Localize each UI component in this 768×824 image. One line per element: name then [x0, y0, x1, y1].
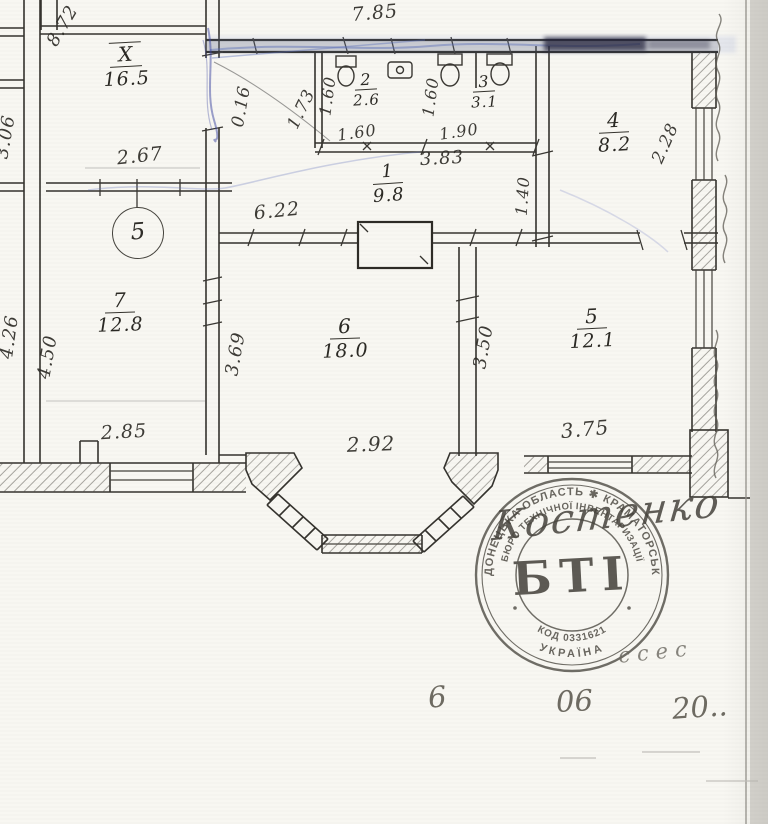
room-label-7: 7 12.8 — [83, 289, 157, 336]
room-number: 3 — [472, 73, 495, 92]
date-day: 6 — [427, 679, 448, 714]
room-label-5: 5 12.1 — [555, 304, 629, 353]
bay-side-window-left — [267, 494, 328, 550]
room-number: 6 — [329, 315, 361, 339]
svg-text:КОД 0331621: КОД 0331621 — [535, 624, 608, 644]
room-area: 2.6 — [338, 92, 395, 110]
room-label-2: 2 2.6 — [337, 71, 395, 110]
scanned-floor-plan: ДОНЕЦЬКА ОБЛАСТЬ ✱ КРАМАТОРСЬК БЮРО ТЕХН… — [0, 0, 768, 824]
unit-number: 5 — [130, 219, 146, 246]
room-number: 4 — [597, 109, 629, 134]
room-label-3: 3 3.1 — [455, 73, 513, 112]
ink-smudge — [544, 37, 646, 51]
faint-pencil-lines — [46, 168, 205, 401]
date-year: 20.. — [671, 688, 729, 726]
scan-edge-band — [750, 0, 768, 824]
room-label-4: 4 8.2 — [581, 108, 647, 156]
room-area: 3.1 — [456, 94, 513, 112]
room-number: X — [109, 41, 143, 68]
room-number: 5 — [575, 305, 607, 330]
room-number: 1 — [372, 162, 403, 185]
room-area: 18.0 — [309, 341, 382, 363]
svg-text:УКРАЇНА: УКРАЇНА — [538, 642, 606, 660]
stamp-abbr-text: БТІ — [511, 546, 633, 606]
scan-specks — [560, 752, 758, 781]
stamp-country-text: УКРАЇНА — [538, 642, 606, 660]
room-area: 12.1 — [556, 330, 629, 353]
room-number: 7 — [104, 289, 136, 313]
room-label-6: 6 18.0 — [308, 315, 382, 362]
room-area: 8.2 — [582, 134, 647, 156]
room-number: 2 — [354, 71, 377, 90]
stamp-code-text: КОД 0331621 — [535, 624, 608, 644]
room-area: 12.8 — [84, 315, 157, 337]
dim-room6-width: 2.92 — [326, 432, 417, 455]
furnace-box — [358, 222, 432, 268]
date-month: 06 — [555, 683, 594, 719]
ink-smudge-2 — [648, 40, 710, 49]
room-label-x: X 16.5 — [85, 40, 167, 91]
